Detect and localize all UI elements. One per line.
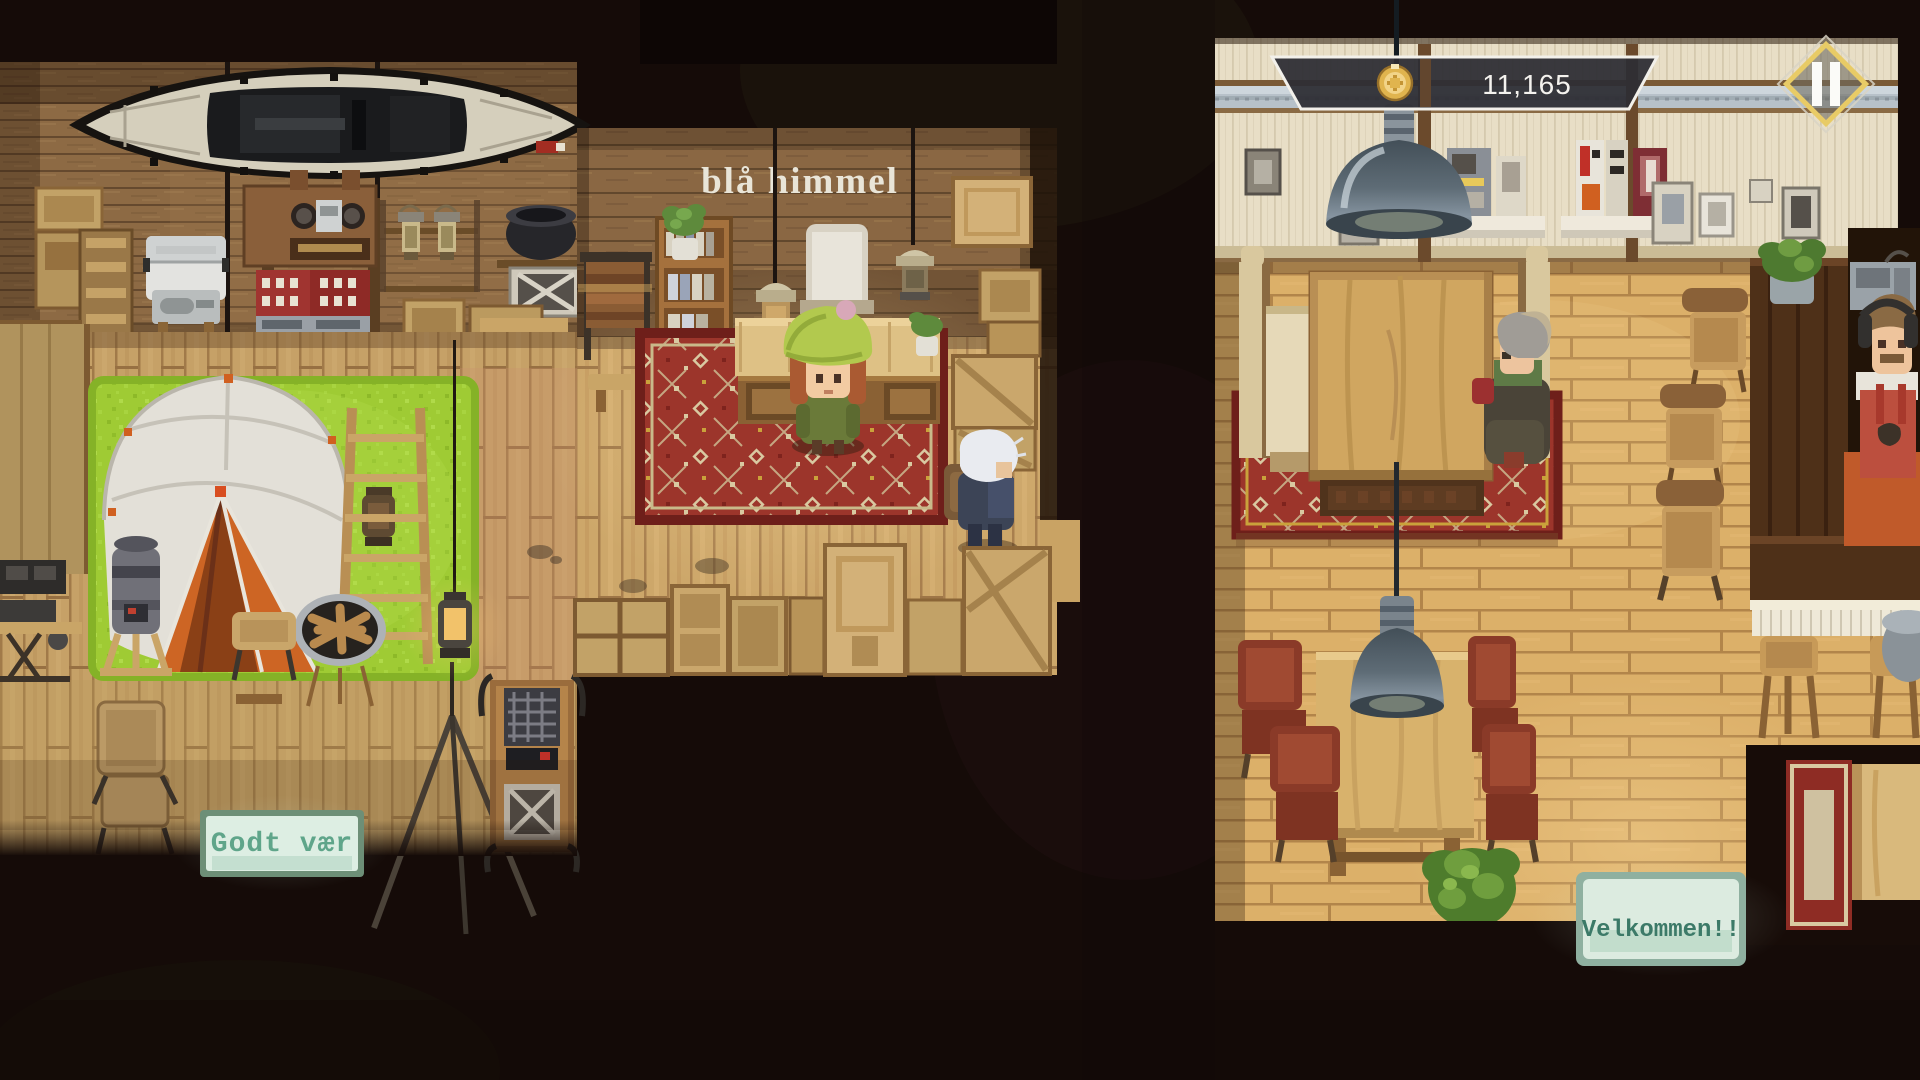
svg-text:11,165: 11,165 [1482, 69, 1572, 100]
svg-text:blå himmel: blå himmel [701, 161, 899, 202]
svg-text:Godt vær: Godt vær [211, 829, 353, 860]
svg-text:Velkommen!!: Velkommen!! [1582, 917, 1740, 944]
